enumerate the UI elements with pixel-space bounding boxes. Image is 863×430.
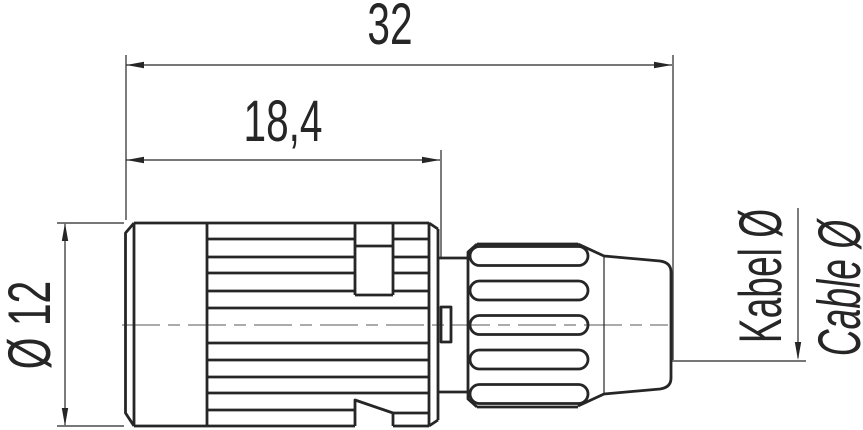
dim-d12-label: Ø 12	[0, 281, 63, 369]
bayonet-slot-top	[355, 223, 393, 295]
cable-diameter-label-en: Cable Ø	[806, 217, 863, 356]
arrow-right-184	[422, 157, 440, 163]
dimension-texts: 32 18,4 Ø 12 Kabel Ø Cable Ø	[0, 0, 863, 369]
arrow-down-cable	[795, 342, 801, 360]
connector-technical-drawing: 32 18,4 Ø 12 Kabel Ø Cable Ø	[0, 0, 863, 430]
dim-184-label: 18,4	[244, 89, 323, 154]
bayonet-slot-bottom	[355, 400, 429, 426]
dim-32-label: 32	[367, 0, 412, 57]
arrow-left-32	[126, 62, 144, 68]
dimension-lines	[57, 55, 806, 426]
cable-diameter-label-de: Kabel Ø	[727, 209, 794, 343]
arrow-right-32	[654, 62, 672, 68]
arrow-left-184	[126, 157, 144, 163]
arrow-up-d12	[62, 223, 68, 241]
dimension-arrows	[62, 62, 801, 426]
technical-drawing-canvas: 32 18,4 Ø 12 Kabel Ø Cable Ø	[0, 0, 863, 430]
arrow-down-d12	[62, 408, 68, 426]
